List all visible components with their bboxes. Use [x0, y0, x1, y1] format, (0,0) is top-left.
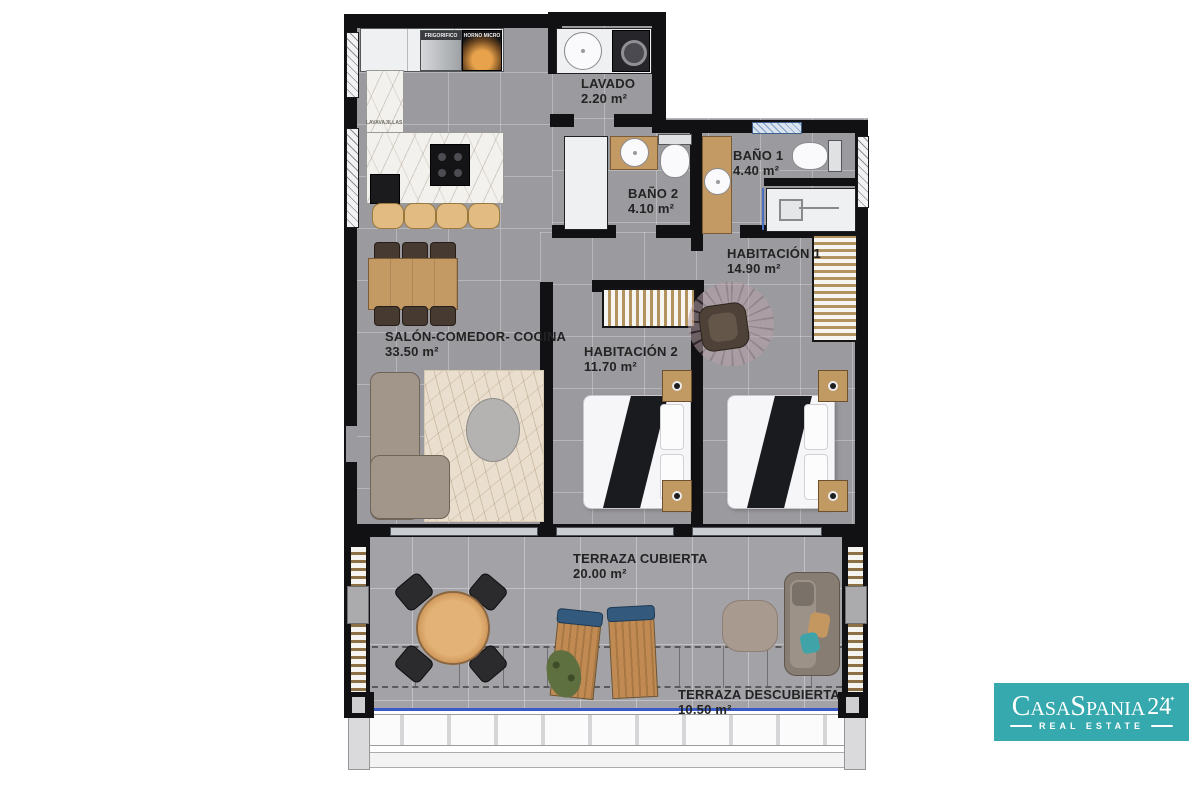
terrace-sofa-cushion — [792, 582, 814, 606]
tagline-rule-left — [1010, 725, 1032, 727]
wall-lavado-bottom-b — [614, 114, 666, 127]
oven-label: HORNO MICRO — [463, 33, 501, 39]
shower-fixture — [779, 199, 803, 221]
wall-bano1-shower-divider — [764, 178, 855, 186]
terrace-pillow-teal — [799, 631, 821, 654]
washing-machine — [612, 30, 650, 72]
brand-tagline-row: REAL ESTATE — [1010, 721, 1173, 731]
terrace-corner-right — [838, 692, 868, 718]
terrace-side-table — [722, 600, 778, 652]
cooktop — [430, 144, 470, 186]
brand-tagline: REAL ESTATE — [1039, 721, 1144, 731]
pillar-terrace-left — [347, 586, 369, 624]
fridge: FRIGORIFICO — [420, 30, 462, 71]
oven-micro: HORNO MICRO — [462, 30, 502, 71]
dining-table — [368, 258, 458, 310]
wall-lavado-bottom-a — [550, 114, 574, 127]
bar-stool — [468, 203, 500, 229]
sofa-seat — [370, 455, 450, 519]
corner-inset — [846, 697, 859, 713]
wall-kitchen-top — [344, 14, 562, 28]
wardrobe-hab2 — [602, 288, 696, 328]
basin-bano2 — [620, 138, 649, 167]
window-right-bano1 — [857, 136, 869, 208]
slider-door-hab2 — [556, 527, 674, 536]
tagline-rule-right — [1151, 725, 1173, 727]
dining-chair — [374, 306, 400, 326]
room-label-lavado: LAVADO 2.20 m² — [581, 76, 635, 106]
armchair-cushion — [707, 311, 739, 343]
bed-pillow — [660, 404, 684, 450]
towel — [545, 648, 584, 699]
nightstand — [662, 480, 692, 512]
sun-lounger — [608, 607, 659, 699]
terrace-sofa — [784, 572, 840, 676]
shower-screen-bano1 — [762, 188, 764, 230]
dining-chair — [402, 306, 428, 326]
bed-pillow — [804, 404, 828, 450]
kitchen-sink — [370, 174, 400, 204]
terrace-corner-left — [344, 692, 374, 718]
coffee-table — [466, 398, 520, 462]
bar-stool — [404, 203, 436, 229]
brand-name: CasaSpania 24 ✦ ✦ — [1012, 694, 1172, 719]
sun-lounger — [550, 610, 603, 700]
room-label-habitacion1: HABITACIÓN 1 14.90 m² — [727, 246, 821, 276]
floorplan-canvas: FRIGORIFICO HORNO MICRO LAVAVAJILLAS — [0, 0, 1200, 800]
room-label-bano2: BAÑO 2 4.10 m² — [628, 186, 678, 216]
room-label-bano1: BAÑO 1 4.40 m² — [733, 148, 783, 178]
nightstand — [818, 370, 848, 402]
room-label-terraza-descubierta: TERRAZA DESCUBIERTA 10.50 m² — [678, 687, 840, 717]
nightstand — [818, 480, 848, 512]
toilet-bano2 — [660, 144, 690, 178]
window-bano1-top — [752, 122, 802, 134]
lounger-headrest — [607, 605, 656, 622]
bar-stool — [436, 203, 468, 229]
window-left-mid — [346, 128, 359, 228]
lavado-sink — [564, 32, 602, 70]
railing-post-left — [348, 712, 370, 770]
basin-bano1 — [704, 168, 731, 195]
railing-top — [352, 714, 864, 746]
dishwasher-label: LAVAVAJILLAS — [366, 120, 402, 126]
slider-door-hab1 — [692, 527, 822, 536]
armchair — [697, 301, 751, 353]
bar-stool — [372, 203, 404, 229]
room-label-salon: SALÓN-COMEDOR- COCINA 33.50 m² — [385, 329, 566, 359]
room-label-terraza-cubierta: TERRAZA CUBIERTA 20.00 m² — [573, 551, 708, 581]
shower-bano1 — [766, 188, 856, 232]
window-left-top — [346, 32, 359, 98]
railing-post-right — [844, 712, 866, 770]
dining-chair — [430, 306, 456, 326]
washer-door — [621, 40, 647, 66]
fridge-label: FRIGORIFICO — [421, 33, 461, 39]
cooktop-burners — [438, 153, 446, 161]
railing-bottom — [352, 752, 864, 768]
pillar-terrace-right — [845, 586, 867, 624]
shower-arm — [799, 207, 839, 209]
nightstand — [662, 370, 692, 402]
wall-banos-divider — [690, 133, 702, 233]
wall-lavado-top — [550, 12, 666, 26]
sparkles-icon: ✦ ✦ — [1160, 688, 1176, 711]
corner-inset — [352, 697, 365, 713]
toilet-tank-bano1 — [828, 140, 842, 172]
slider-door-salon — [390, 527, 538, 536]
brand-logo: CasaSpania 24 ✦ ✦ REAL ESTATE — [994, 683, 1189, 741]
terrace-round-table — [416, 591, 490, 665]
wall-niche-left — [346, 426, 357, 462]
shower-bano2 — [564, 136, 608, 230]
toilet-bano1 — [792, 142, 828, 170]
